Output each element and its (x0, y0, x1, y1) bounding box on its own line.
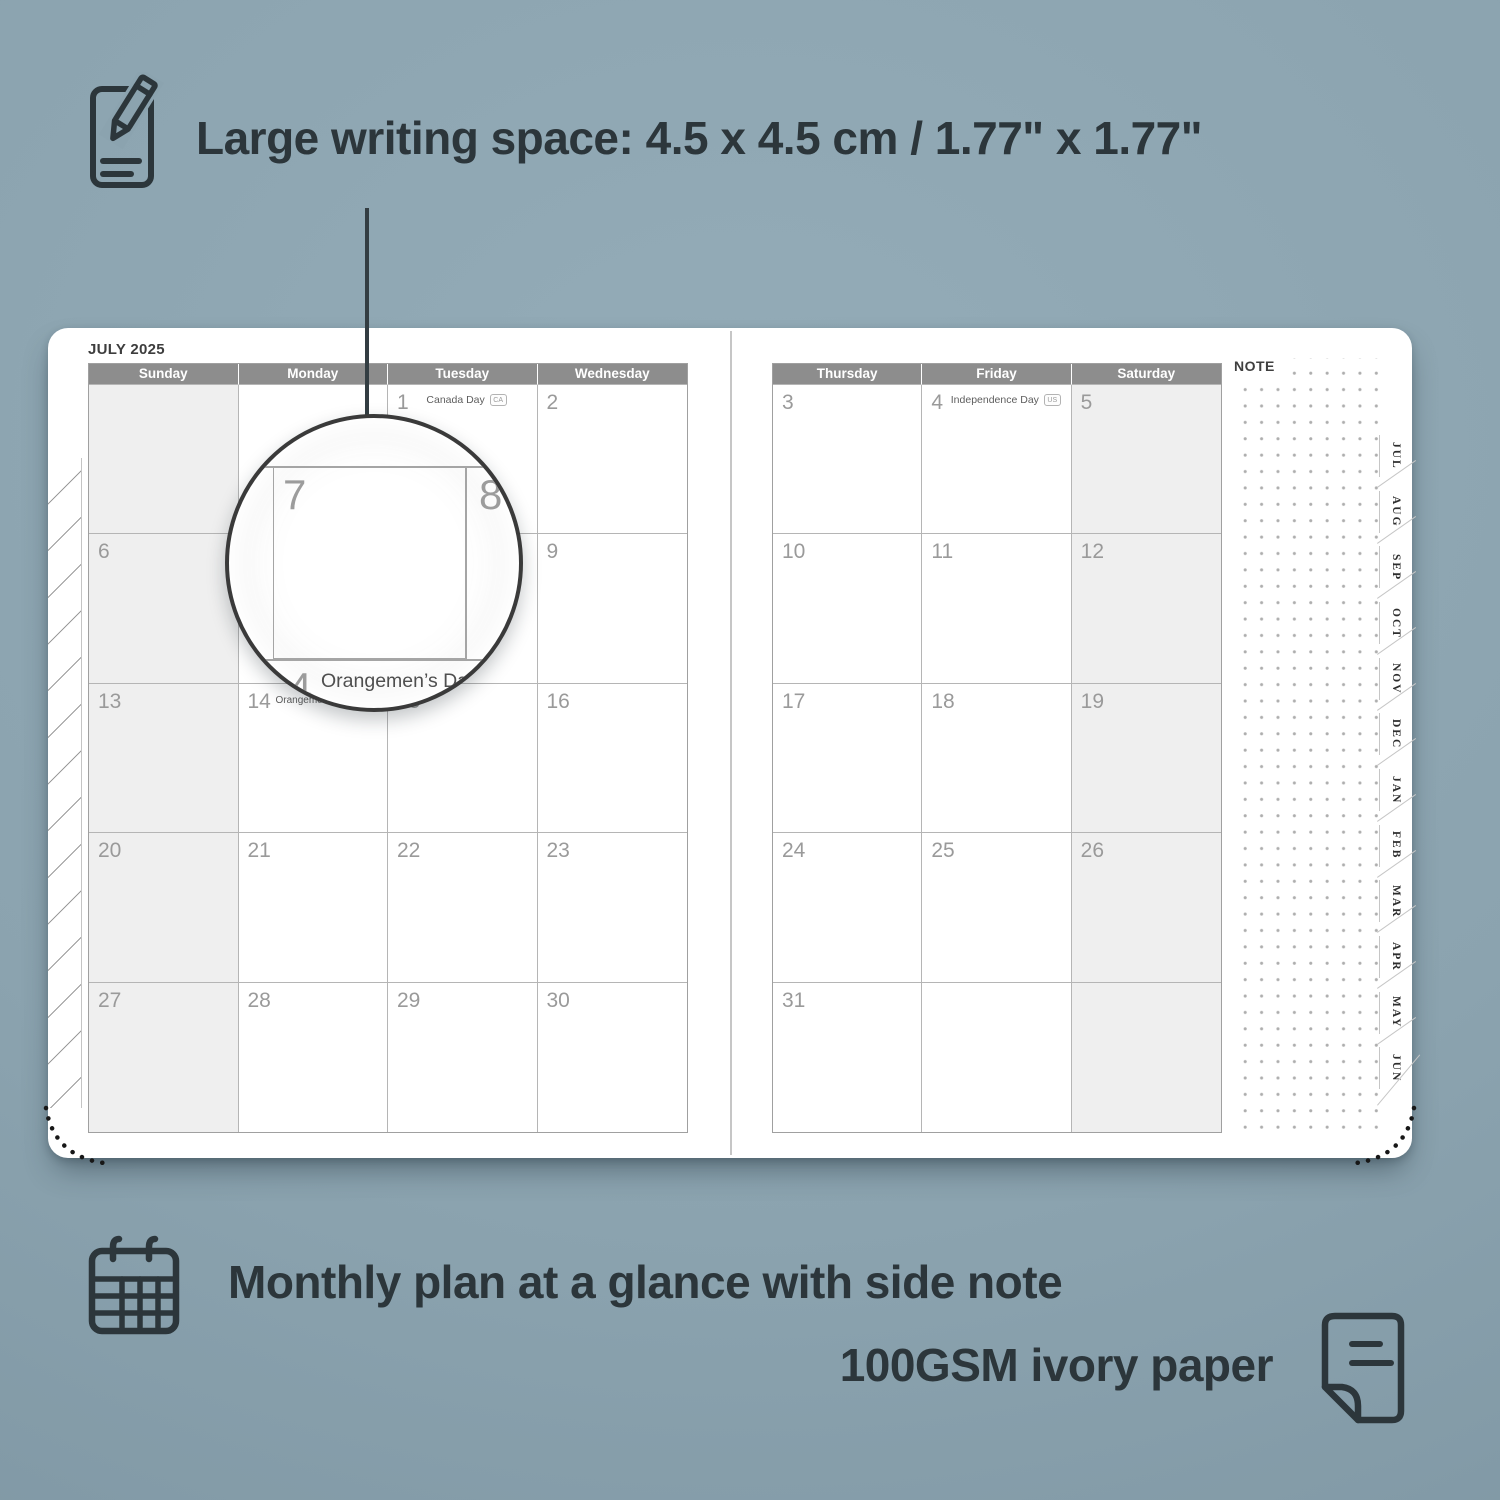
magnified-holiday-text: Orangemen’s Day (n.i.) (321, 670, 522, 693)
month-title: JULY 2025 (88, 341, 165, 358)
date-number: 24 (782, 839, 805, 862)
month-tab-label: SEP (1379, 546, 1412, 588)
magnified-day-7: 7 (283, 474, 306, 516)
spine-divider (730, 331, 732, 1155)
calendar-grid-right: ThursdayFridaySaturday34Independence Day… (772, 363, 1222, 1133)
calendar-cell (922, 983, 1071, 1132)
magnified-holiday: Orangemen’s Day (n.i.) UK (321, 670, 523, 693)
calendar-cell: 2 (538, 385, 688, 534)
date-number: 22 (397, 839, 420, 862)
day-header-friday: Friday (922, 364, 1071, 385)
page-edge-hatching (48, 458, 82, 1108)
month-tab-jul: JUL (1377, 435, 1412, 491)
date-number: 6 (98, 540, 110, 563)
dot-grid (1232, 358, 1380, 1138)
note-label: NOTE (1234, 358, 1283, 377)
calendar-cell: 24 (773, 833, 922, 982)
bottom-annotation-line1: Monthly plan at a glance with side note (228, 1255, 1062, 1309)
calendar-cell: 3 (773, 385, 922, 534)
holiday-entry: Independence DayUS (951, 394, 1061, 406)
date-number: 30 (547, 989, 570, 1012)
day-header-thursday: Thursday (773, 364, 922, 385)
month-tab-nov: NOV (1377, 658, 1412, 714)
calendar-cell: 26 (1072, 833, 1221, 982)
date-number: 31 (782, 989, 805, 1012)
calendar-cell: 10 (773, 534, 922, 683)
month-tab-label: JUL (1379, 435, 1412, 477)
calendar-cell: 17 (773, 684, 922, 833)
month-tab-label: MAY (1379, 992, 1412, 1034)
date-number: 10 (782, 540, 805, 563)
date-number: 4 (931, 391, 943, 414)
calendar-cell: 21 (239, 833, 389, 982)
calendar-cell (1072, 983, 1221, 1132)
monthly-calendar-icon (83, 1234, 187, 1338)
magnified-day-8: 8 (479, 474, 502, 516)
calendar-cell: 23 (538, 833, 688, 982)
month-tab-label: JAN (1379, 769, 1412, 811)
top-annotation-text: Large writing space: 4.5 x 4.5 cm / 1.77… (196, 111, 1202, 165)
date-number: 19 (1081, 690, 1104, 713)
day-header-sunday: Sunday (89, 364, 239, 385)
note-column: NOTE (1232, 358, 1380, 1138)
calendar-cell: 4Independence DayUS (922, 385, 1071, 534)
month-tab-jan: JAN (1377, 769, 1412, 825)
month-tab-label: NOV (1379, 658, 1412, 700)
calendar-cell: 16 (538, 684, 688, 833)
day-header-wednesday: Wednesday (538, 364, 688, 385)
date-number: 12 (1081, 540, 1104, 563)
calendar-cell: 6 (89, 534, 239, 683)
holiday-text: Canada Day (426, 394, 484, 406)
date-number: 16 (547, 690, 570, 713)
calendar-cell: 22 (388, 833, 538, 982)
calendar-cell: 13 (89, 684, 239, 833)
pointer-line (365, 208, 369, 420)
calendar-cell: 19 (1072, 684, 1221, 833)
day-header-tuesday: Tuesday (388, 364, 538, 385)
date-number: 25 (931, 839, 954, 862)
ivory-paper-icon (1316, 1308, 1410, 1430)
date-number: 13 (98, 690, 121, 713)
calendar-cell: 12 (1072, 534, 1221, 683)
flag-badge: US (1044, 394, 1061, 406)
date-number: 3 (782, 391, 794, 414)
month-tab-label: OCT (1379, 602, 1412, 644)
stitch-arc-bottom-left (42, 1060, 152, 1170)
month-tab-may: MAY (1377, 992, 1412, 1048)
holiday-entry: Canada DayCA (426, 394, 506, 406)
month-tab-feb: FEB (1377, 825, 1412, 881)
day-header-saturday: Saturday (1072, 364, 1221, 385)
date-number: 26 (1081, 839, 1104, 862)
date-number: 29 (397, 989, 420, 1012)
month-tab-label: APR (1379, 936, 1412, 978)
date-number: 23 (547, 839, 570, 862)
calendar-cell: 31 (773, 983, 922, 1132)
date-number: 9 (547, 540, 559, 563)
month-tab-apr: APR (1377, 936, 1412, 992)
magnifier-circle: 7 8 14 Orangemen’s Day (n.i.) UK (225, 414, 523, 712)
date-number: 28 (248, 989, 271, 1012)
date-number: 11 (931, 540, 953, 563)
calendar-cell: 18 (922, 684, 1071, 833)
holiday-text: Independence Day (951, 394, 1039, 406)
stitch-arc-bottom-right (1308, 1060, 1418, 1170)
date-number: 21 (248, 839, 271, 862)
date-number: 20 (98, 839, 121, 862)
calendar-cell: 9 (538, 534, 688, 683)
month-tab-label: DEC (1379, 713, 1412, 755)
month-tab-dec: DEC (1377, 713, 1412, 769)
writing-space-icon (85, 72, 200, 192)
flag-badge: CA (490, 394, 507, 406)
month-tab-label: FEB (1379, 825, 1412, 867)
calendar-cell: 20 (89, 833, 239, 982)
calendar-cell: 11 (922, 534, 1071, 683)
month-tab-label: AUG (1379, 491, 1412, 533)
date-number: 18 (931, 690, 954, 713)
magnified-day-14: 14 (265, 667, 312, 709)
date-number: 27 (98, 989, 121, 1012)
date-number: 17 (782, 690, 805, 713)
calendar-cell: 28 (239, 983, 389, 1132)
month-tab-label: MAR (1379, 880, 1412, 922)
calendar-cell: 5 (1072, 385, 1221, 534)
month-tab-sep: SEP (1377, 546, 1412, 602)
month-tabs: JULAUGSEPOCTNOVDECJANFEBMARAPRMAYJUN (1377, 435, 1412, 1103)
month-tab-oct: OCT (1377, 602, 1412, 658)
date-number: 1 (397, 391, 409, 414)
date-number: 2 (547, 391, 559, 414)
magnified-grid-line-bottom (225, 659, 523, 661)
month-tab-mar: MAR (1377, 880, 1412, 936)
calendar-cell: 30 (538, 983, 688, 1132)
bottom-annotation-line2: 100GSM ivory paper (840, 1338, 1273, 1392)
calendar-cell (89, 385, 239, 534)
calendar-cell: 25 (922, 833, 1071, 982)
month-tab-aug: AUG (1377, 491, 1412, 547)
planner-spread: JULY 2025 SundayMondayTuesdayWednesday1C… (48, 328, 1412, 1158)
calendar-cell: 29 (388, 983, 538, 1132)
date-number: 5 (1081, 391, 1093, 414)
